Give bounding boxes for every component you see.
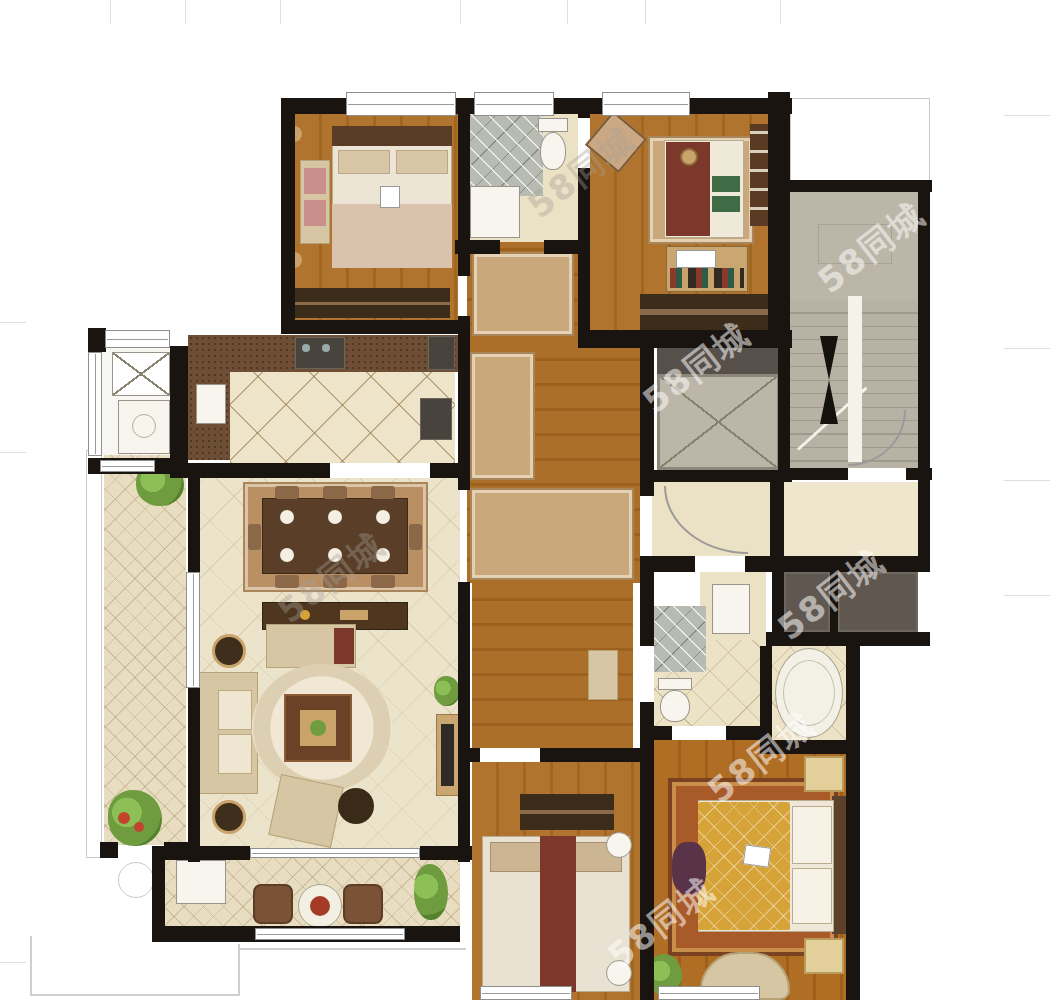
green-pillow [712, 196, 740, 212]
wall [640, 556, 654, 646]
wall [640, 702, 654, 748]
plate [280, 548, 294, 562]
plate [328, 510, 342, 524]
balcony-slider-window [250, 848, 420, 858]
flower [134, 822, 144, 832]
wall [281, 98, 295, 334]
bed-decor [380, 186, 400, 208]
exterior-outline [238, 944, 240, 996]
wardrobe [520, 794, 614, 830]
bench-cushion [304, 168, 326, 194]
tv [441, 724, 454, 786]
wall [778, 180, 932, 192]
armchair [268, 774, 343, 848]
wall [768, 92, 790, 348]
bed-decor [743, 844, 772, 867]
bed-runner [540, 836, 576, 992]
shower-top [467, 114, 543, 196]
balcony-chair [343, 884, 383, 924]
toilet-bowl [660, 690, 690, 722]
page-grid-line [567, 0, 568, 24]
page-grid-line [1004, 115, 1050, 116]
wall [830, 572, 838, 632]
exterior-outline [240, 948, 466, 950]
wall [906, 468, 932, 480]
wall [760, 740, 858, 754]
wall [578, 330, 792, 348]
wall [745, 556, 930, 572]
wardrobe [640, 294, 768, 330]
washer-drum [132, 414, 156, 438]
dining-chair [275, 575, 299, 588]
burner [302, 344, 310, 352]
drying-rack [112, 352, 170, 396]
stove [295, 337, 345, 369]
page-grid-line [185, 0, 186, 24]
page-grid-line [645, 0, 646, 24]
pillow [792, 868, 832, 924]
page-grid-line [280, 0, 281, 24]
elevator-shaft-band [657, 348, 780, 374]
page-grid-line [780, 0, 781, 24]
wardrobe [292, 288, 450, 318]
elevator-car [657, 374, 780, 470]
bed-headboard [832, 796, 846, 934]
wall [654, 556, 695, 572]
side-table [212, 634, 246, 668]
bed-blanket [332, 204, 452, 268]
wall [281, 320, 467, 334]
balcony-railing [86, 450, 102, 858]
wall [188, 463, 200, 575]
dining-chair [275, 486, 299, 499]
bed-lamp [680, 148, 698, 166]
balcony-chair [253, 884, 293, 924]
bench-cushion [304, 200, 326, 226]
desk-tray [676, 250, 716, 268]
wall [918, 180, 930, 480]
wall [640, 748, 654, 1000]
hall-rug [472, 252, 574, 336]
nightstand [606, 832, 632, 858]
gold-duvet [698, 802, 790, 930]
window [100, 460, 155, 472]
wall [188, 685, 200, 862]
dining-chair [323, 486, 347, 499]
sofa-cushion [218, 690, 252, 730]
burner [322, 344, 330, 352]
utility-shaft-left [784, 572, 830, 632]
wall [540, 748, 652, 762]
wall [88, 328, 106, 352]
wall [578, 168, 590, 348]
books [670, 268, 744, 288]
wall [778, 348, 790, 480]
fridge [428, 336, 455, 370]
window [602, 92, 690, 116]
wall [578, 98, 590, 118]
exterior-outline [30, 936, 32, 996]
utility-shaft-right [838, 572, 918, 632]
window [105, 330, 170, 348]
page-grid-line [1004, 480, 1050, 481]
wall [455, 240, 500, 254]
page-grid-line [110, 0, 111, 24]
bathtub-inner [783, 660, 835, 726]
plant-icon [414, 864, 448, 920]
floor-plan-image: 58同城 58同城 58同城 58同城 58同城 58同城 58同城 [0, 0, 1050, 1000]
foyer-rug [470, 488, 634, 580]
window [186, 572, 200, 688]
wall [100, 842, 118, 858]
wall [770, 480, 784, 556]
page-grid-line [0, 322, 26, 323]
kitchen-island-appliance [420, 398, 452, 440]
round-table-dark [338, 788, 374, 824]
window [346, 92, 456, 116]
green-pillow [712, 176, 740, 192]
flower-planter [108, 790, 162, 846]
plate [376, 548, 390, 562]
outdoor-table-outline [118, 862, 154, 898]
plate [328, 548, 342, 562]
pillow [338, 150, 390, 174]
wall [170, 463, 330, 478]
window [255, 928, 405, 940]
plate [376, 510, 390, 524]
plant-icon [434, 676, 460, 706]
window [474, 92, 554, 116]
stair-arrow-glyph [820, 380, 838, 424]
stair-arrow-glyph [820, 336, 838, 380]
side-balcony-floor [104, 455, 186, 845]
bed-headboard [332, 126, 452, 146]
dining-chair [371, 486, 395, 499]
exterior-outline [30, 994, 240, 996]
nightstand [804, 756, 844, 792]
stair-landing-mark [818, 224, 892, 264]
flower [118, 812, 130, 824]
wall [152, 846, 250, 860]
page-grid-line [0, 452, 26, 453]
wall [726, 726, 766, 740]
wall [550, 98, 604, 114]
dining-chair [371, 575, 395, 588]
toilet-tank [658, 678, 692, 690]
dining-chair [323, 575, 347, 588]
toilet-bowl [540, 132, 566, 170]
public-corridor-floor [784, 482, 918, 556]
console-decor [300, 610, 310, 620]
wall [420, 846, 472, 860]
nightstand [804, 938, 844, 974]
wall [430, 463, 467, 478]
page-grid-line [1004, 348, 1050, 349]
table-plant [310, 720, 326, 736]
sink [712, 584, 750, 634]
small-rug [588, 650, 618, 700]
vanity-sink [470, 186, 520, 238]
side-table [212, 800, 246, 834]
wall [458, 316, 470, 480]
page-grid-line [460, 0, 461, 24]
kitchen-sink [196, 384, 226, 424]
bookshelf [750, 124, 768, 226]
plate [280, 510, 294, 524]
terrace-outline [790, 98, 930, 182]
console-decor [340, 610, 368, 620]
dining-chair [409, 524, 422, 550]
wall [846, 632, 860, 1000]
nightstand [606, 960, 632, 986]
window [88, 352, 102, 456]
balcony-cabinet [176, 860, 226, 904]
dining-chair [248, 524, 261, 550]
wall [458, 582, 470, 862]
balcony-table-top [310, 896, 330, 916]
pillow [792, 806, 832, 864]
toilet-tank [538, 118, 568, 132]
window [658, 986, 760, 1000]
runner-rug [470, 352, 535, 480]
loveseat-pillow [334, 628, 354, 664]
throw-cloth [672, 842, 706, 894]
page-grid-line [1004, 595, 1050, 596]
sofa-cushion [218, 734, 252, 774]
pillow [396, 150, 448, 174]
wall [640, 726, 672, 740]
master-shower [654, 606, 706, 672]
window [480, 986, 572, 1000]
page-grid-line [0, 962, 26, 963]
